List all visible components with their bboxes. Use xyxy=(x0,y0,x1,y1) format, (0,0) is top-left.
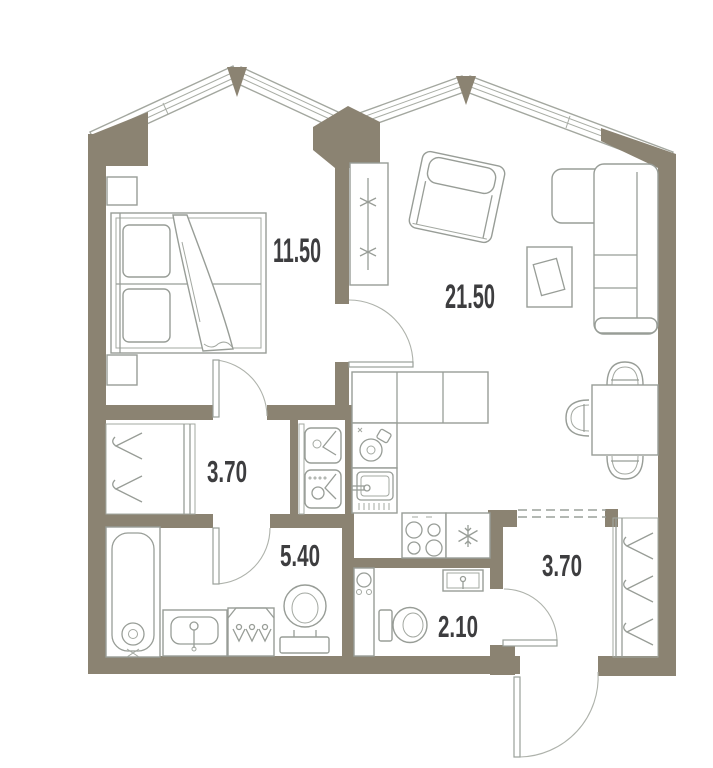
armchair xyxy=(408,150,506,244)
dryer-icon xyxy=(305,470,341,508)
bedroom-area-label: 11.50 xyxy=(273,232,321,270)
entrance-area-label: 3.70 xyxy=(542,548,582,583)
wall-sink xyxy=(443,570,483,591)
wall-segment xyxy=(290,420,298,514)
vanity-sink xyxy=(163,610,227,656)
wall-segment xyxy=(335,164,349,304)
wall-segment xyxy=(88,134,106,674)
radiator-icon xyxy=(350,163,388,285)
living-area-label: 21.50 xyxy=(445,278,495,316)
wc-area-label: 2.10 xyxy=(438,609,478,644)
wc-toilet xyxy=(379,608,427,643)
wall-segment xyxy=(488,510,517,527)
hallway-area-label: 3.70 xyxy=(207,454,247,489)
stove-icon xyxy=(402,513,446,558)
side-table xyxy=(527,247,572,307)
floor-plan-svg: 11.50 21.50 3.70 5.40 2.10 3.70 xyxy=(0,0,713,768)
bed xyxy=(111,213,266,353)
nightstand xyxy=(107,177,137,205)
bathroom-area-label: 5.40 xyxy=(280,538,320,573)
wall-segment xyxy=(658,162,676,676)
hook-cabinet xyxy=(228,608,274,656)
wall-segment xyxy=(354,558,492,568)
wall-segment xyxy=(106,514,213,528)
washer-icon xyxy=(305,428,341,463)
nightstand xyxy=(107,355,137,385)
kitchen-appliance-icon xyxy=(352,423,397,468)
wall-segment xyxy=(88,656,520,674)
drainboard xyxy=(359,503,389,510)
pillow xyxy=(123,289,170,342)
wall-segment xyxy=(106,405,213,420)
kitchen-counter xyxy=(352,372,488,423)
wall-segment xyxy=(490,645,515,675)
wall-segment xyxy=(335,362,349,420)
wall-segment xyxy=(598,656,676,676)
wall-segment xyxy=(270,514,354,528)
wall-segment xyxy=(342,528,354,656)
dining-table xyxy=(592,385,658,455)
bathtub xyxy=(106,527,160,657)
wall-segment xyxy=(490,527,503,589)
kitchen-sink xyxy=(352,468,397,513)
floor-plan: 11.50 21.50 3.70 5.40 2.10 3.70 xyxy=(0,0,713,768)
pillow xyxy=(123,225,170,277)
wc-counter-sink xyxy=(354,568,374,656)
fridge-icon xyxy=(446,513,490,558)
